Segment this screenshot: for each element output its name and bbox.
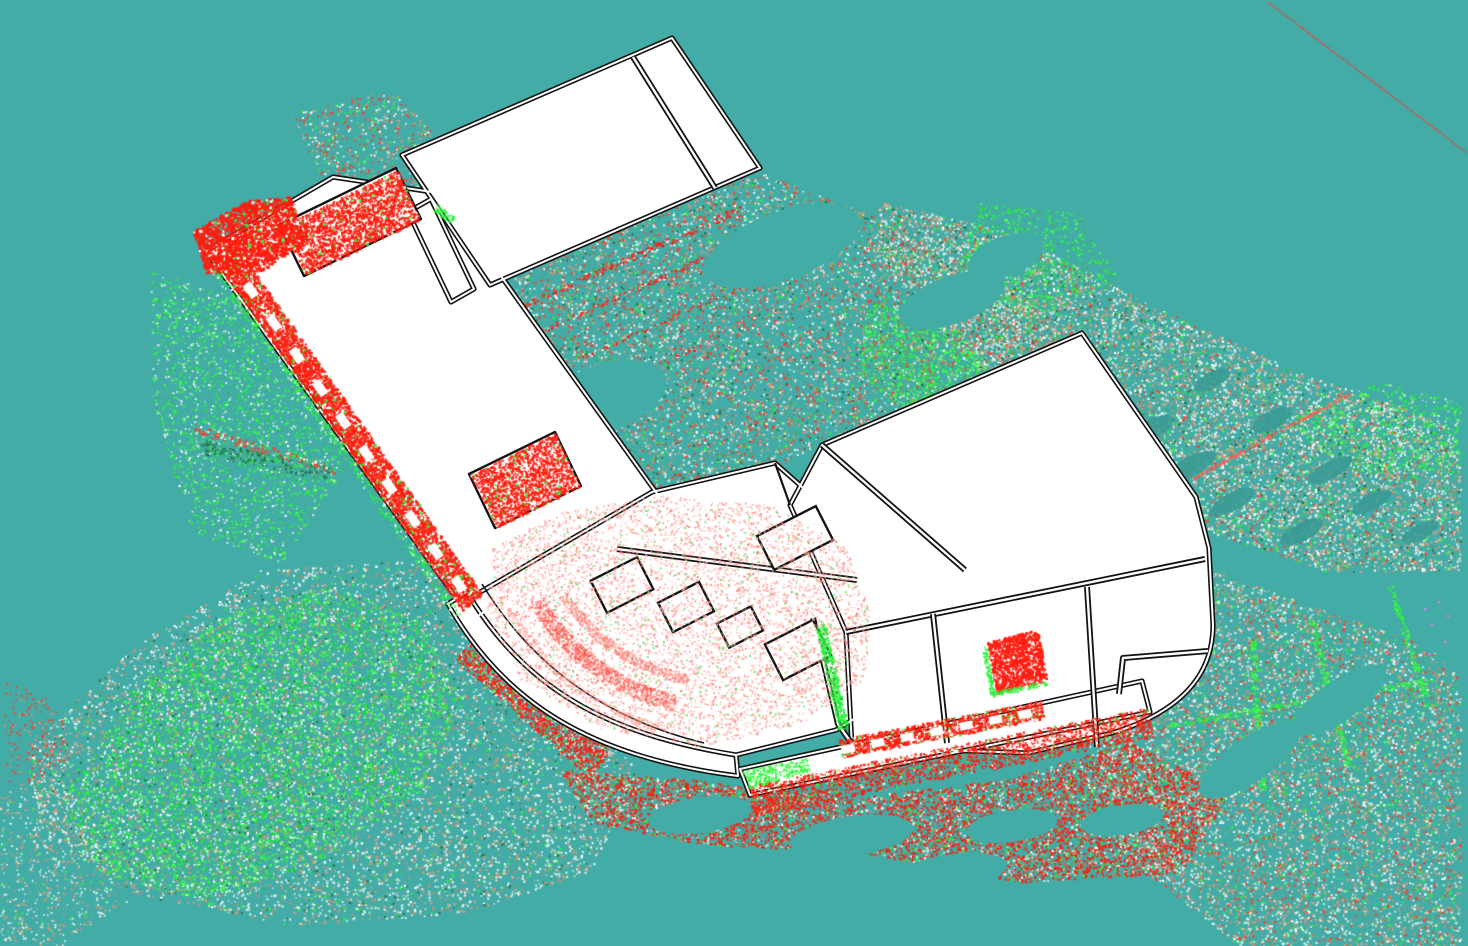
point-cloud-overlay-layer xyxy=(0,0,1468,946)
point-cloud-3d-viewport[interactable] xyxy=(0,0,1468,946)
